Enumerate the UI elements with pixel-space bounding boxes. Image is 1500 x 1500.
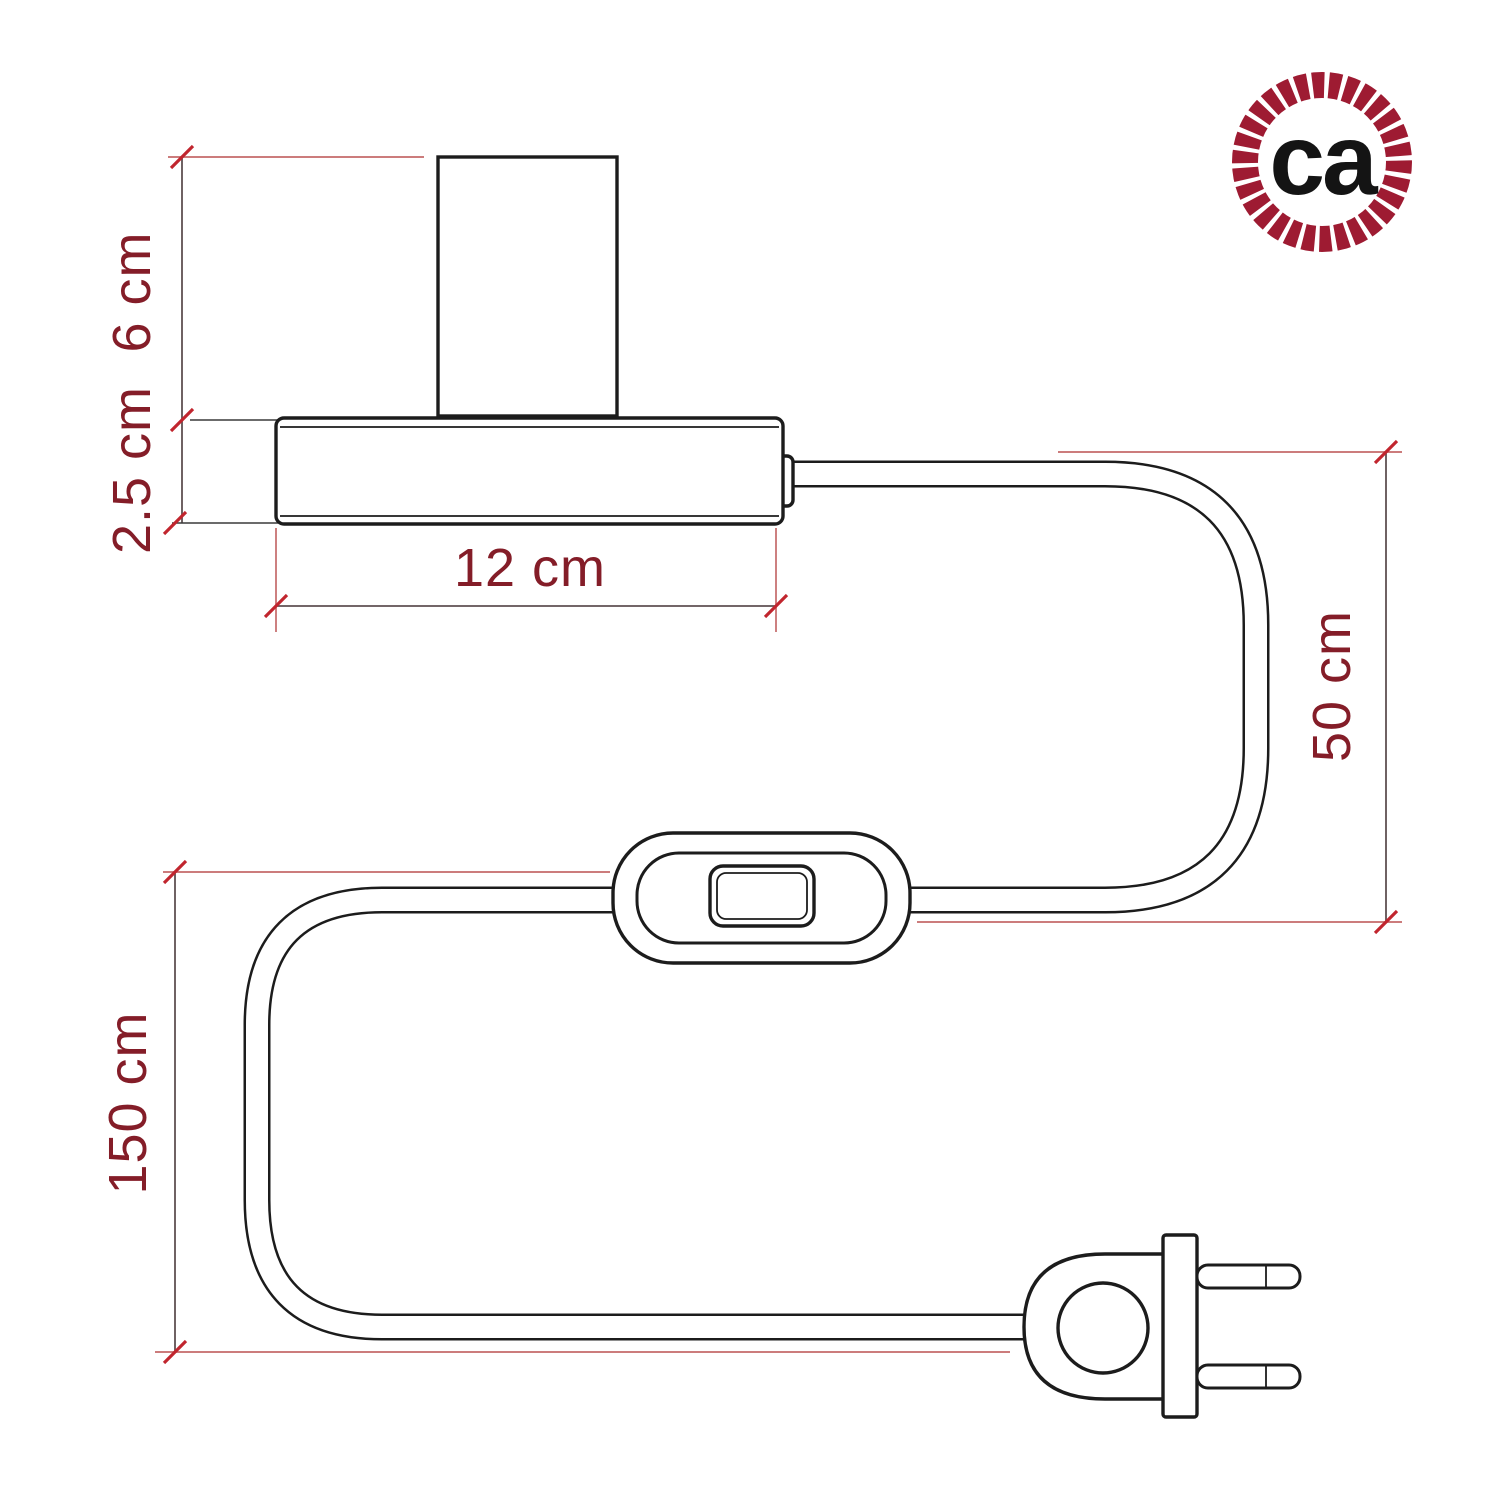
plug-pin-bottom xyxy=(1197,1365,1300,1388)
lamp-dimension-drawing: 6 cm 2.5 cm 12 cm 50 cm 150 cm xyxy=(0,0,1500,1500)
dimension-label-6cm: 6 cm xyxy=(102,231,162,352)
plug-body-circle xyxy=(1058,1283,1148,1373)
lamp-holder-cylinder xyxy=(438,157,617,416)
inline-switch xyxy=(613,833,910,963)
logo-text: ca xyxy=(1269,104,1379,216)
lamp-base xyxy=(276,418,783,524)
dimension-label-12cm: 12 cm xyxy=(454,538,606,598)
dimension-label-50cm: 50 cm xyxy=(1302,610,1362,762)
dimension-label-2-5cm: 2.5 cm xyxy=(102,386,162,554)
switch-button xyxy=(710,866,814,926)
plug-pin-top xyxy=(1197,1265,1300,1288)
drawing-canvas: 6 cm 2.5 cm 12 cm 50 cm 150 cm xyxy=(0,0,1500,1500)
dimension-label-150cm: 150 cm xyxy=(98,1011,158,1194)
plug-face-plate xyxy=(1163,1235,1197,1417)
